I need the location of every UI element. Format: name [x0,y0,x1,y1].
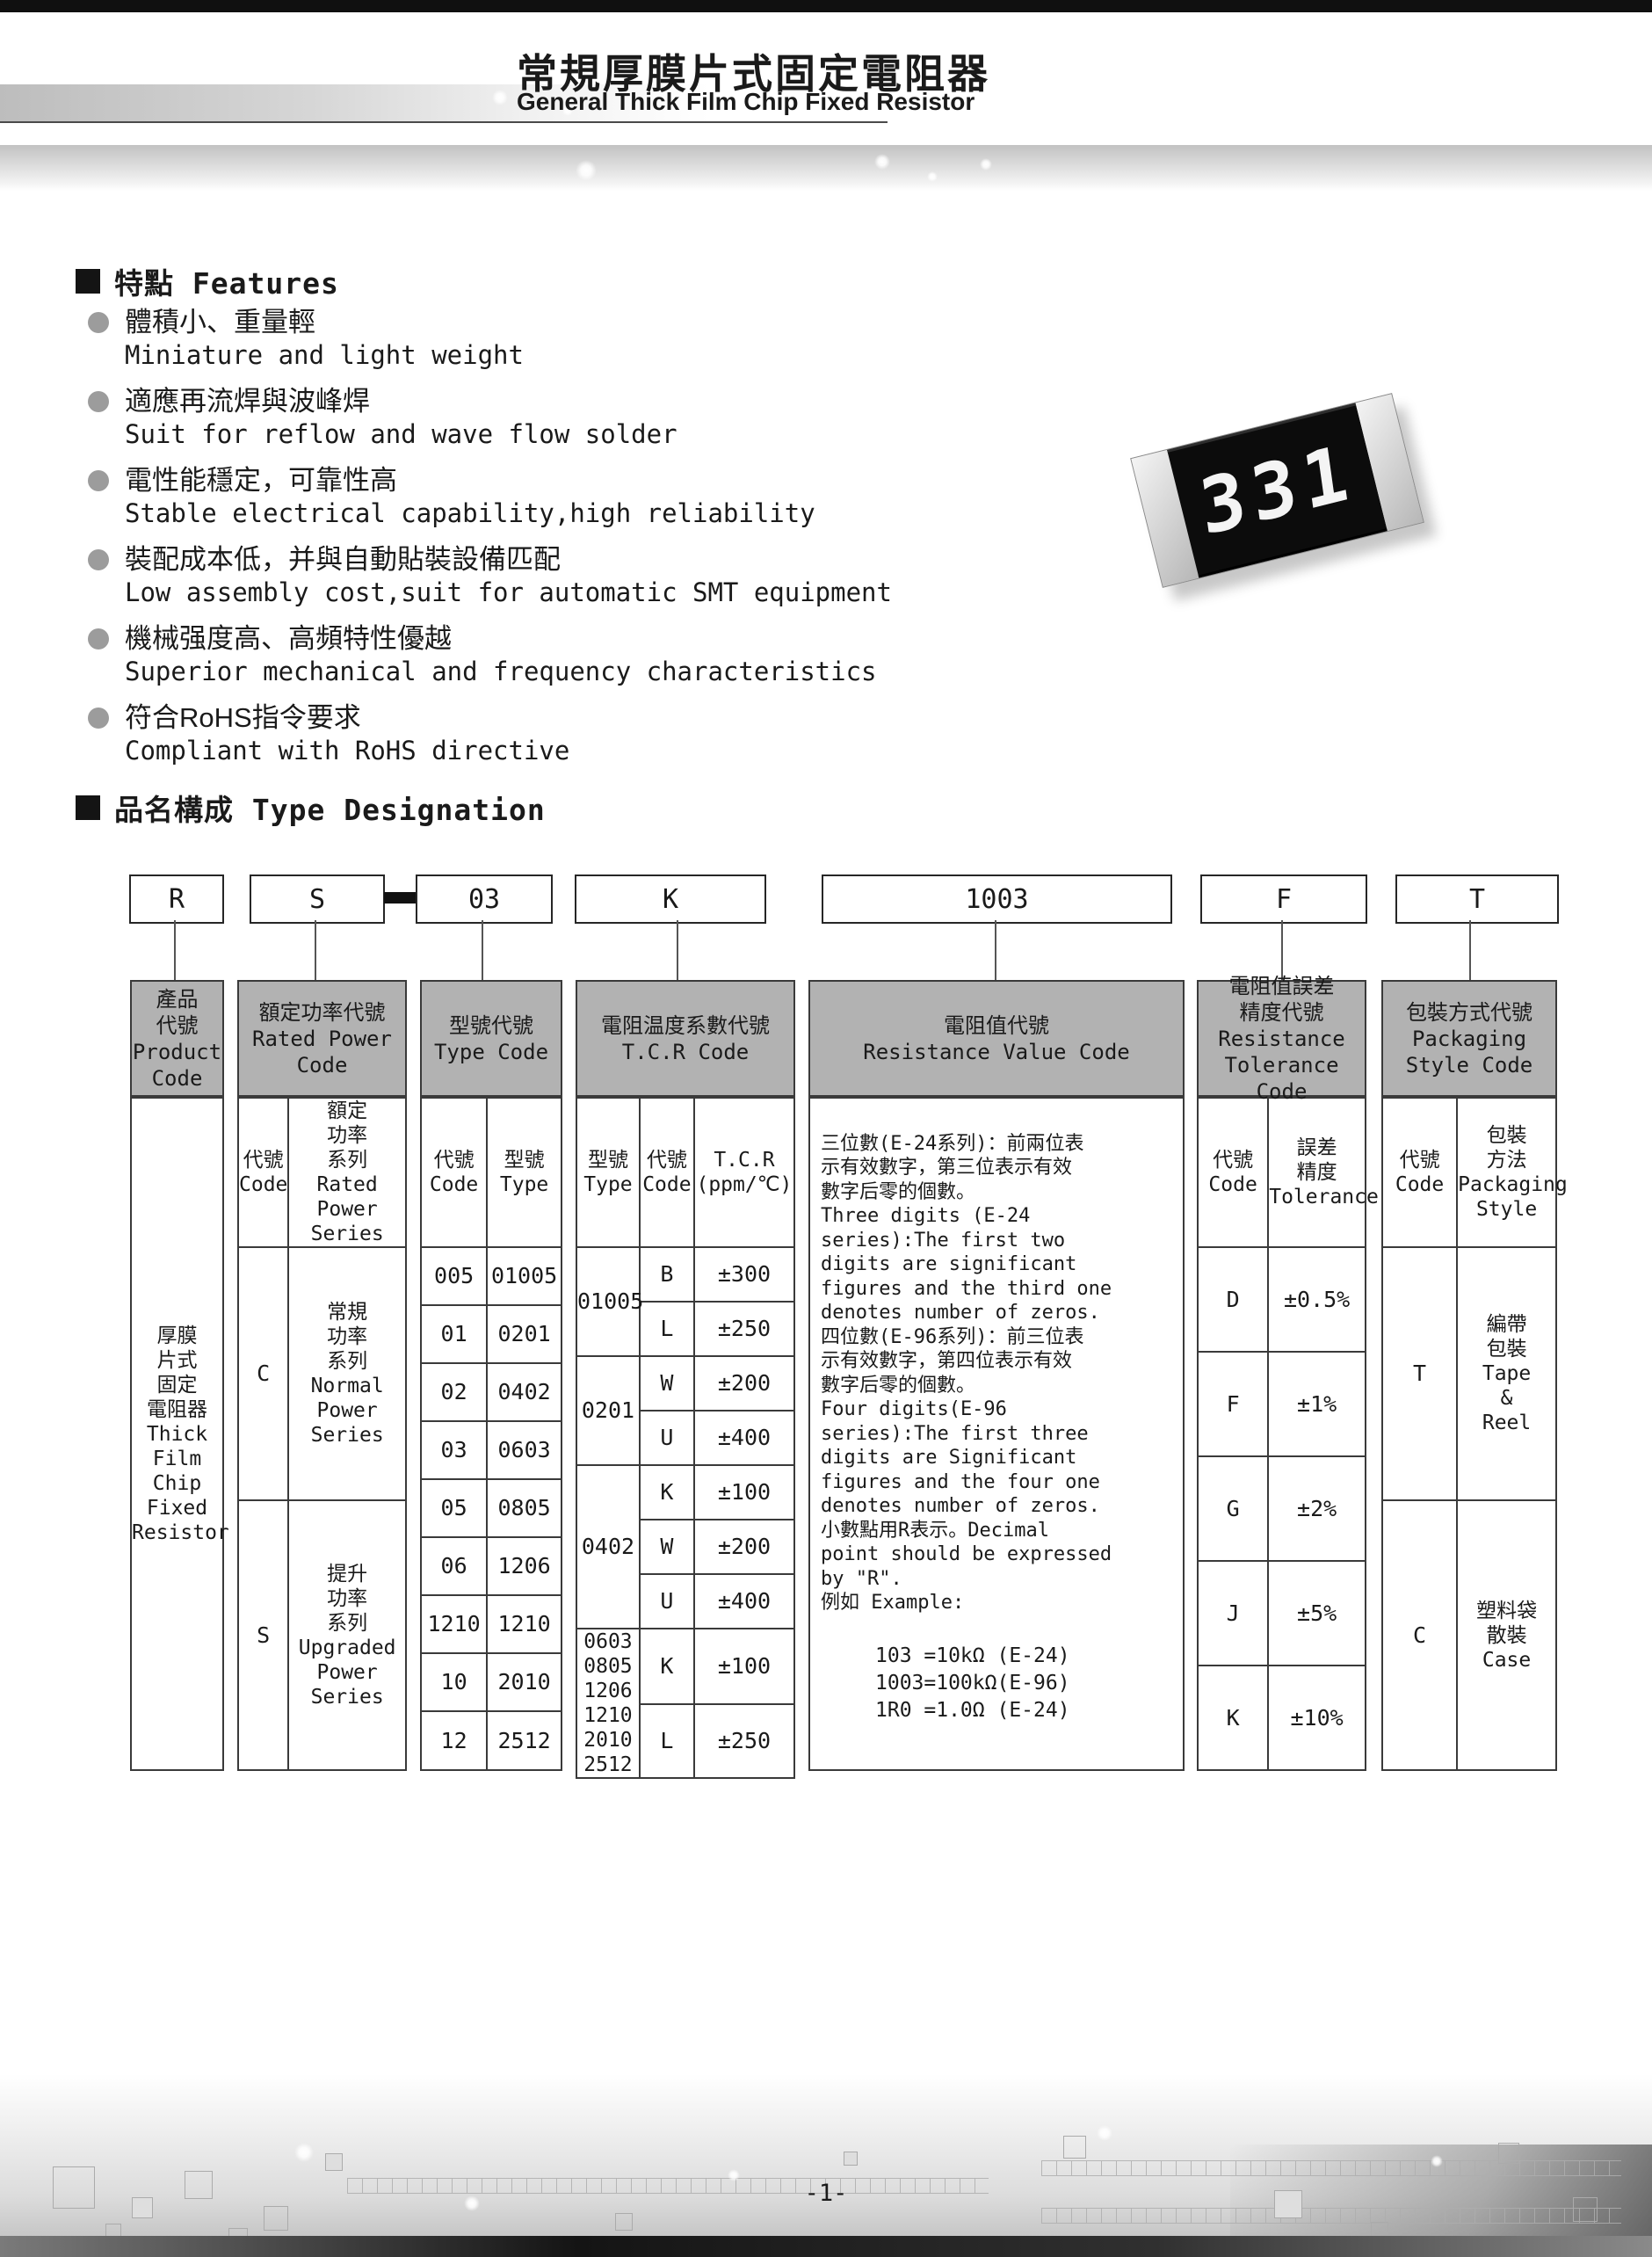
tcr-value: ±100 [694,1465,794,1520]
tolerance-code: K [1198,1666,1268,1770]
sparkle-decoration [980,158,992,171]
type-designation-heading-text: 品名構成 Type Designation [114,787,546,829]
resistance-value-header: 電阻值代號 Resistance Value Code [808,980,1185,1097]
connector-line [1469,920,1471,980]
connector-line [174,920,176,980]
connector-line [1281,920,1283,980]
tolerance-code: F [1198,1352,1268,1456]
sparkle-decoration [1097,2125,1112,2141]
packaging-code-C: C [1382,1500,1457,1770]
power-code-C: C [238,1247,288,1500]
bullet-icon [88,391,109,412]
square-decoration [615,2213,633,2231]
code-box-resistance: 1003 [822,874,1172,924]
power-series-normal: 常規 功率 系列 Normal Power Series [288,1247,406,1500]
bullet-icon [88,470,109,491]
tcr-type-group: 0603 0805 1206 1210 2010 2512 [576,1629,640,1778]
type-row-type: 0603 [487,1421,562,1479]
top-black-strip [0,0,1652,12]
sparkle-decoration [492,90,508,105]
packaging-sub-code: 代號 Code [1382,1098,1457,1247]
feature-item: 符合RoHS指令要求 Compliant with RoHS directive [88,701,1054,766]
type-row-code: 12 [421,1711,487,1770]
feature-en: Compliant with RoHS directive [125,737,1054,766]
product-code-body: 厚膜 片式 固定 電阻器 Thick Film Chip Fixed Resis… [130,1097,224,1771]
tolerance-sub-code: 代號 Code [1198,1098,1268,1247]
column-product-code: 產品 代號 Product Code 厚膜 片式 固定 電阻器 Thick Fi… [130,980,224,1771]
tcr-type-group: 0201 [576,1356,640,1465]
feature-item: 適應再流焊與波峰焊 Suit for reflow and wave flow … [88,385,1054,449]
tolerance-body: 代號 Code 誤差 精度 Tolerance D±0.5% F±1% G±2%… [1197,1097,1366,1771]
tolerance-sub-tol: 誤差 精度 Tolerance [1268,1098,1366,1247]
feature-item: 裝配成本低，并與自動貼裝設備匹配 Low assembly cost,suit … [88,543,1054,607]
type-row-code: 06 [421,1537,487,1595]
square-decoration [1498,2143,1519,2164]
type-row-type: 0402 [487,1363,562,1421]
packaging-sub-style: 包裝 方法 Packaging Style [1457,1098,1556,1247]
feature-cn: 適應再流焊與波峰焊 [125,385,370,418]
type-code-body: 代號 Code 型號 Type 00501005 010201 020402 0… [420,1097,562,1771]
page-number: -1- [0,2180,1652,2207]
square-decoration [844,2152,858,2166]
tcr-code: K [640,1629,694,1704]
packaging-header: 包裝方式代號 Packaging Style Code [1381,980,1557,1097]
resistance-value-body: 三位數(E-24系列)：前兩位表 示有效數字，第三位表示有效 數字后零的個數。 … [808,1097,1185,1771]
tcr-value: ±300 [694,1247,794,1302]
type-row-type: 1206 [487,1537,562,1595]
column-packaging: 包裝方式代號 Packaging Style Code 代號 Code 包裝 方… [1381,980,1557,1771]
type-row-type: 0805 [487,1479,562,1537]
tcr-header: 電阻温度系數代號 T.C.R Code [576,980,795,1097]
square-decoration [264,2206,288,2231]
tcr-code: L [640,1302,694,1356]
type-row-code: 1210 [421,1595,487,1653]
features-section-heading: 特點 Features [76,260,339,302]
type-designation-heading: 品名構成 Type Designation [76,787,546,829]
bullet-icon [88,708,109,729]
connector-line [677,920,678,980]
square-decoration [1063,2136,1086,2159]
tolerance-value: ±5% [1268,1561,1366,1666]
type-row-type: 2010 [487,1653,562,1711]
type-row-type: 01005 [487,1247,562,1305]
tcr-code: L [640,1704,694,1778]
column-type-code: 型號代號 Type Code 代號 Code 型號 Type 00501005 … [420,980,562,1771]
code-box-tolerance: F [1200,874,1367,924]
code-box-type: 03 [416,874,553,924]
feature-item: 電性能穩定，可靠性高 Stable electrical capability,… [88,464,1054,528]
tcr-value: ±250 [694,1704,794,1778]
type-row-code: 01 [421,1305,487,1363]
tolerance-value: ±10% [1268,1666,1366,1770]
sparkle-decoration [927,171,938,182]
tcr-code: U [640,1411,694,1465]
type-row-type: 2512 [487,1711,562,1770]
sparkle-decoration [294,2143,314,2162]
tcr-value: ±400 [694,1411,794,1465]
tcr-sub-tcr: T.C.R (ppm/℃) [694,1098,794,1247]
datasheet-page: 常規厚膜片式固定電阻器 General Thick Film Chip Fixe… [0,0,1652,2257]
power-code-S: S [238,1500,288,1770]
type-row-code: 02 [421,1363,487,1421]
sparkle-decoration [874,154,890,170]
sparkle-decoration [576,160,597,181]
filmstrip-decoration [1041,2208,1621,2224]
column-rated-power: 額定功率代號 Rated Power Code 代號 Code 額定 功率 系列… [237,980,407,1771]
tcr-code: B [640,1247,694,1302]
section-square-icon [76,269,100,294]
bullet-icon [88,549,109,570]
packaging-code-T: T [1382,1247,1457,1500]
filmstrip-decoration [1041,2160,1621,2176]
tcr-sub-type: 型號 Type [576,1098,640,1247]
product-code-cell: 厚膜 片式 固定 電阻器 Thick Film Chip Fixed Resis… [131,1098,223,1770]
separator-dash [384,892,416,904]
tolerance-code: G [1198,1456,1268,1561]
tcr-value: ±100 [694,1629,794,1704]
tcr-code: K [640,1465,694,1520]
power-sub-series: 額定 功率 系列 Rated Power Series [288,1098,406,1247]
column-resistance-value: 電阻值代號 Resistance Value Code 三位數(E-24系列)：… [808,980,1185,1771]
features-heading-text: 特點 Features [114,260,339,302]
code-box-packaging: T [1395,874,1559,924]
connector-line [315,920,316,980]
column-tcr-code: 電阻温度系數代號 T.C.R Code 型號 Type 代號 Code T.C.… [576,980,795,1779]
resistance-examples: 103 =10kΩ (E-24) 1003=100kΩ(E-96) 1R0 =1… [875,1643,1172,1724]
square-decoration [325,2153,343,2171]
feature-en: Suit for reflow and wave flow solder [125,420,1054,449]
tcr-type-group: 0402 [576,1465,640,1629]
feature-cn: 符合RoHS指令要求 [125,701,361,735]
bottom-gradient-strip [0,2236,1652,2257]
feature-en: Miniature and light weight [125,341,1054,370]
feature-cn: 電性能穩定，可靠性高 [125,464,397,497]
power-sub-code: 代號 Code [238,1098,288,1247]
feature-cn: 體積小、重量輕 [125,306,315,339]
rated-power-body: 代號 Code 額定 功率 系列 Rated Power Series C 常規… [237,1097,407,1771]
tcr-code: W [640,1356,694,1411]
tolerance-value: ±2% [1268,1456,1366,1561]
feature-en: Low assembly cost,suit for automatic SMT… [125,578,1054,607]
feature-item: 體積小、重量輕 Miniature and light weight [88,306,1054,370]
tcr-value: ±200 [694,1520,794,1574]
tcr-sub-code: 代號 Code [640,1098,694,1247]
type-row-type: 0201 [487,1305,562,1363]
feature-en: Stable electrical capability,high reliab… [125,499,1054,528]
power-series-upgraded: 提升 功率 系列 Upgraded Power Series [288,1500,406,1770]
feature-item: 機械强度高、高頻特性優越 Superior mechanical and fre… [88,622,1054,686]
code-box-product: R [129,874,224,924]
bullet-icon [88,628,109,650]
column-tolerance: 電阻值誤差 精度代號 Resistance Tolerance Code 代號 … [1197,980,1366,1771]
connector-line [482,920,483,980]
feature-cn: 裝配成本低，并與自動貼裝設備匹配 [125,543,561,577]
rated-power-header: 額定功率代號 Rated Power Code [237,980,407,1097]
section-square-icon [76,795,100,820]
packaging-body: 代號 Code 包裝 方法 Packaging Style T 編帶 包裝 Ta… [1381,1097,1557,1771]
chip-marking: 331 [1194,428,1359,554]
tcr-value: ±400 [694,1574,794,1629]
tolerance-value: ±0.5% [1268,1247,1366,1352]
type-row-code: 005 [421,1247,487,1305]
features-list: 體積小、重量輕 Miniature and light weight 適應再流焊… [88,306,1054,780]
tolerance-code: J [1198,1561,1268,1666]
type-sub-code: 代號 Code [421,1098,487,1247]
type-row-code: 03 [421,1421,487,1479]
feature-cn: 機械强度高、高頻特性優越 [125,622,452,656]
feature-en: Superior mechanical and frequency charac… [125,657,1054,686]
type-code-header: 型號代號 Type Code [420,980,562,1097]
sparkle-decoration [1431,2155,1443,2167]
tcr-code: W [640,1520,694,1574]
chip-resistor-image: 331 [1130,393,1424,588]
code-box-power: S [250,874,385,924]
tcr-type-group: 01005 [576,1247,640,1356]
type-row-code: 10 [421,1653,487,1711]
tcr-value: ±250 [694,1302,794,1356]
packaging-style-case: 塑料袋 散裝 Case [1457,1500,1556,1770]
tcr-body: 型號 Type 代號 Code T.C.R (ppm/℃) 01005 B ±3… [576,1097,795,1779]
page-title-english: General Thick Film Chip Fixed Resistor [517,88,975,116]
tolerance-value: ±1% [1268,1352,1366,1456]
packaging-style-tape: 編帶 包裝 Tape & Reel [1457,1247,1556,1500]
resistance-value-cell: 三位數(E-24系列)：前兩位表 示有效數字，第三位表示有效 數字后零的個數。 … [809,1098,1184,1770]
type-row-code: 05 [421,1479,487,1537]
tolerance-code: D [1198,1247,1268,1352]
connector-line [995,920,996,980]
sub-header-gradient-band [0,145,1652,191]
bullet-icon [88,312,109,333]
code-box-tcr: K [575,874,766,924]
chip-body: 331 [1167,403,1388,577]
product-code-header: 產品 代號 Product Code [130,980,224,1097]
tcr-code: U [640,1574,694,1629]
tcr-value: ±200 [694,1356,794,1411]
type-sub-type: 型號 Type [487,1098,562,1247]
resistance-paragraph: 三位數(E-24系列)：前兩位表 示有效數字，第三位表示有效 數字后零的個數。 … [821,1132,1172,1615]
tolerance-header: 電阻值誤差 精度代號 Resistance Tolerance Code [1197,980,1366,1097]
type-row-type: 1210 [487,1595,562,1653]
